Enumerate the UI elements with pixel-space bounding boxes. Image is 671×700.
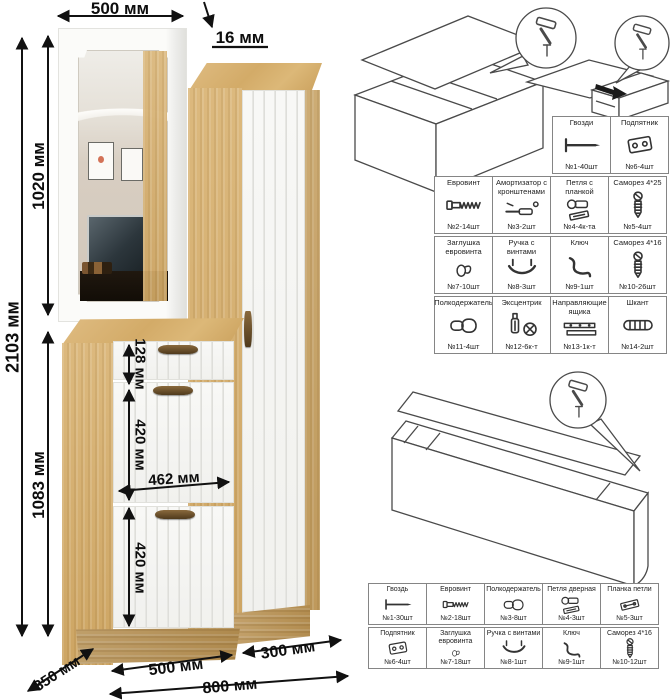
screw-icon — [618, 248, 658, 282]
hardware-item: Петля с планкой №4-4к-та — [550, 176, 609, 234]
dim-drawer-front-height: 128 мм — [132, 338, 149, 389]
dowel-icon — [618, 308, 658, 342]
hardware-item: Полкодержатель №11-4шт — [434, 296, 493, 354]
hardware-table-lower: Гвоздь №1-30шт Евровинт №2-18шт Полкодер… — [368, 583, 658, 671]
hardware-item: Подпятник №6-4шт — [368, 627, 427, 669]
mirror-shelf-items — [82, 262, 112, 274]
hardware-item: Ручка с винтами №8-1шт — [484, 627, 543, 669]
hinge-icon — [560, 196, 600, 222]
handle-icon — [494, 638, 534, 659]
hardware-item: Евровинт №2-18шт — [426, 583, 485, 625]
assembly-diagram-drawer — [527, 16, 669, 120]
dim-right-module-width: 300 мм — [260, 638, 317, 663]
hardware-item: Петля дверная №4-3шт — [542, 583, 601, 625]
hardware-item: Евровинт №2-14шт — [434, 176, 493, 234]
cabinet-drawer-handle — [158, 345, 198, 354]
nail-icon — [562, 128, 602, 162]
hinge-plate-icon — [610, 594, 650, 615]
dim-panel-thickness: 16 мм — [216, 28, 265, 48]
mirror-wood-reflection — [143, 51, 167, 301]
gas-lift-icon — [502, 196, 542, 222]
assembly-diagram-tall-carcass — [392, 372, 648, 586]
hardware-row: Гвоздь №1-30шт Евровинт №2-18шт Полкодер… — [368, 583, 658, 625]
cabinet-side-panel — [62, 343, 113, 665]
hardware-table-upper: Гвозди №1-40шт Подпятник №6-4шт Евровинт… — [434, 116, 668, 356]
screw-icon — [618, 188, 658, 222]
hardware-item: Саморез 4*25 №5-4шт — [608, 176, 667, 234]
hex-key-icon — [560, 248, 600, 282]
hardware-item: Полкодержатель №3-8шт — [484, 583, 543, 625]
hardware-item: Саморез 4*16 №10-12шт — [600, 627, 659, 669]
hardware-row: Заглушка евровинта №7-10шт Ручка с винта… — [434, 236, 668, 294]
mirror-picture-frame-2 — [121, 148, 143, 181]
hardware-item: Ручка с винтами №8-3шт — [492, 236, 551, 294]
hardware-row: Подпятник №6-4шт Заглушка евровинта №7-1… — [368, 627, 658, 669]
cap-icon — [436, 646, 476, 659]
hardware-item: Шкант №14-2шт — [608, 296, 667, 354]
confirmat-screw-icon — [444, 188, 484, 222]
hardware-item: Подпятник №6-4шт — [610, 116, 669, 174]
hardware-item: Ключ №9-1шт — [542, 627, 601, 669]
wardrobe-right-edge — [305, 90, 320, 610]
mirror-picture-dot — [98, 156, 104, 163]
hinge-icon — [552, 594, 592, 615]
dim-upper-door-height: 420 мм — [132, 419, 149, 470]
dim-upper-section-height: 1020 мм — [29, 142, 49, 210]
hardware-row: Полкодержатель №11-4шт Эксцентрик №12-6к… — [434, 296, 668, 354]
assembly-scheme-page: 500 мм 16 мм 2103 мм 1020 мм 1083 мм 128… — [0, 0, 671, 700]
wardrobe-door — [242, 90, 305, 612]
cabinet-lower-door-handle — [155, 510, 195, 519]
wardrobe-door-handle — [244, 311, 252, 347]
hardware-item: Гвоздь №1-30шт — [368, 583, 427, 625]
cap-icon — [444, 256, 484, 282]
hardware-row: Гвозди №1-40шт Подпятник №6-4шт — [434, 116, 668, 174]
nail-icon — [378, 594, 418, 615]
hardware-item: Заглушка евровинта №7-18шт — [426, 627, 485, 669]
drawer-slides-icon — [560, 316, 600, 342]
hardware-item: Направляющие ящика №13-1к-т — [550, 296, 609, 354]
dim-total-height: 2103 мм — [3, 301, 24, 373]
dim-lower-door-height: 420 мм — [132, 542, 149, 593]
dim-inner-width: 462 мм — [148, 469, 200, 490]
hex-key-icon — [552, 638, 592, 659]
foot-plate-icon — [620, 128, 660, 162]
hardware-row: Евровинт №2-14шт Амортизатор с кронштена… — [434, 176, 668, 234]
dim-lower-section-height: 1083 мм — [29, 451, 49, 519]
foot-plate-icon — [378, 638, 418, 659]
hardware-item: Заглушка евровинта №7-10шт — [434, 236, 493, 294]
cam-lock-icon — [502, 308, 542, 342]
hardware-item: Ключ №9-1шт — [550, 236, 609, 294]
hardware-item: Гвозди №1-40шт — [552, 116, 611, 174]
hardware-item: Эксцентрик №12-6к-т — [492, 296, 551, 354]
hardware-item: Амортизатор с кронштенами №3-2шт — [492, 176, 551, 234]
hardware-item: Планка петли №5-3шт — [600, 583, 659, 625]
cabinet-plinth — [76, 628, 240, 664]
shelf-pin-icon — [444, 308, 484, 342]
insert-direction-arrow — [595, 84, 627, 100]
dim-total-width: 800 мм — [202, 676, 258, 699]
handle-icon — [502, 256, 542, 282]
hardware-item: Саморез 4*16 №10-26шт — [608, 236, 667, 294]
dim-top-width: 500 мм — [91, 0, 149, 19]
screw-icon — [610, 638, 650, 659]
shelf-pin-icon — [494, 594, 534, 615]
confirmat-screw-icon — [436, 594, 476, 615]
dim-depth: 350 мм — [31, 653, 83, 695]
cabinet-upper-door-handle — [153, 386, 193, 395]
